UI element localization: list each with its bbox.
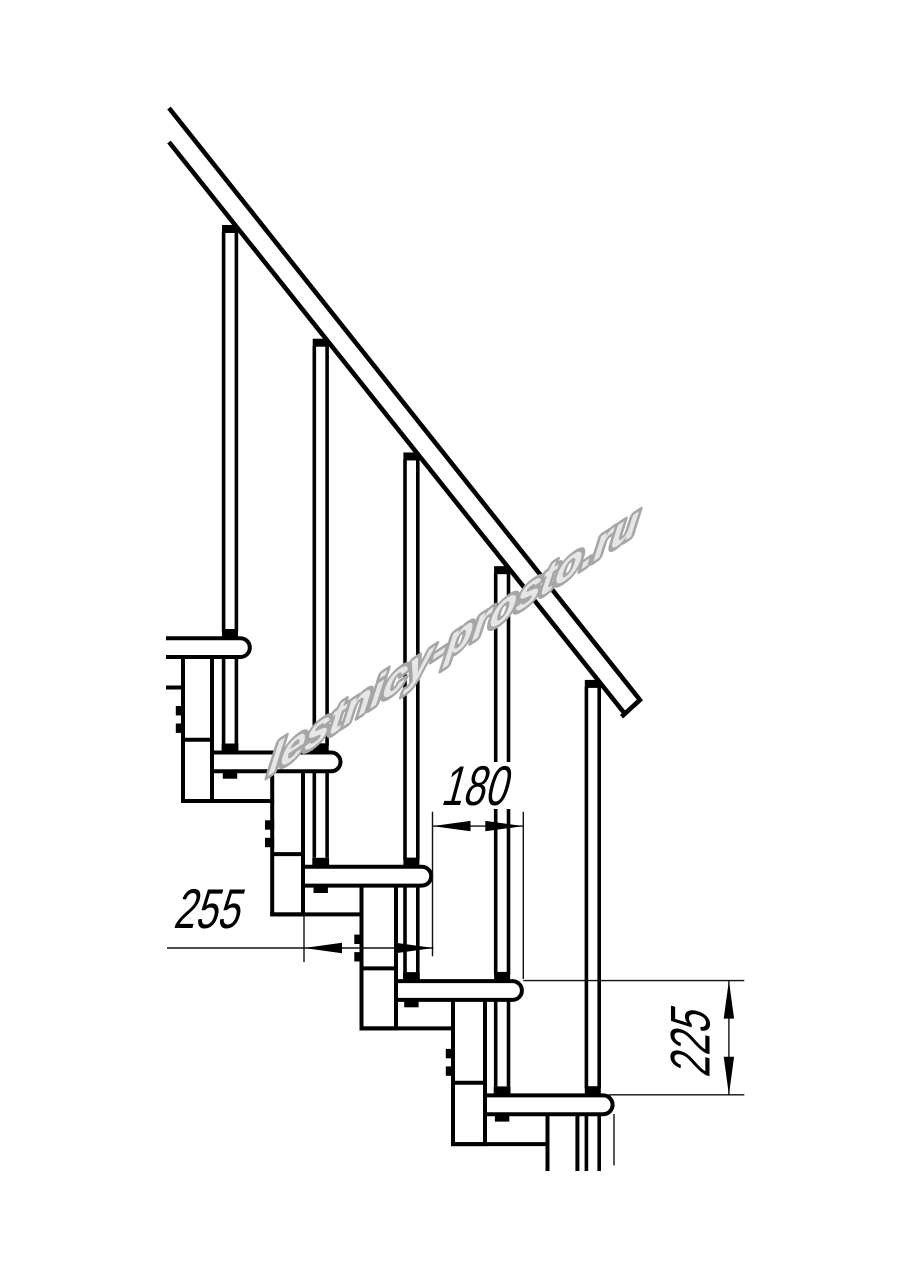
svg-text:255: 255 xyxy=(169,878,251,940)
svg-text:225: 225 xyxy=(659,999,721,1081)
